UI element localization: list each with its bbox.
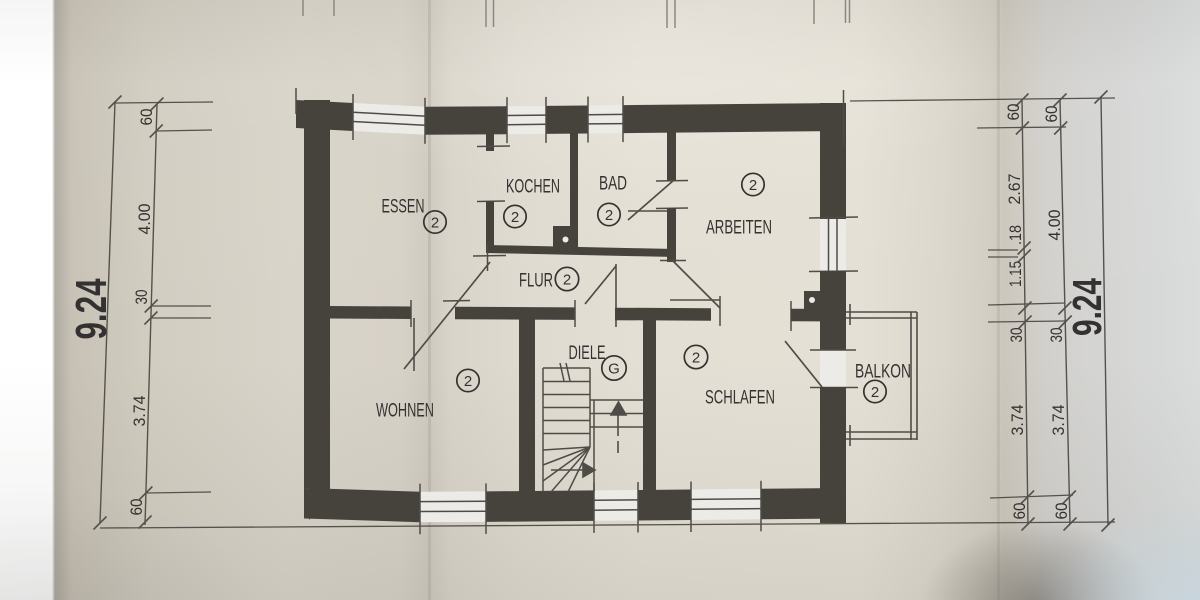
svg-text:60: 60 — [1052, 503, 1071, 520]
svg-text:DIELE: DIELE — [569, 343, 606, 364]
svg-text:G: G — [608, 360, 620, 377]
svg-text:SCHLAFEN: SCHLAFEN — [705, 388, 775, 409]
svg-text:3.74: 3.74 — [1008, 405, 1027, 436]
svg-text:WOHNEN: WOHNEN — [376, 401, 434, 422]
svg-text:60: 60 — [127, 499, 146, 516]
svg-text:FLUR: FLUR — [519, 271, 553, 292]
svg-text:60: 60 — [1004, 104, 1023, 121]
svg-text:9.24: 9.24 — [1064, 278, 1110, 336]
svg-text:2: 2 — [692, 349, 700, 366]
svg-text:ARBEITEN: ARBEITEN — [706, 218, 772, 239]
svg-text:30: 30 — [1007, 328, 1026, 343]
svg-text:60: 60 — [1010, 503, 1029, 520]
svg-text:4.00: 4.00 — [135, 204, 154, 235]
svg-text:2: 2 — [605, 207, 613, 224]
svg-text:3.74: 3.74 — [130, 396, 149, 427]
svg-text:60: 60 — [137, 109, 156, 126]
svg-text:2: 2 — [431, 214, 439, 231]
svg-text:2: 2 — [749, 177, 757, 194]
svg-text:2: 2 — [871, 384, 879, 401]
svg-text:.18: .18 — [1006, 225, 1025, 245]
svg-text:4.00: 4.00 — [1045, 210, 1064, 241]
svg-text:2: 2 — [563, 271, 571, 288]
svg-text:KOCHEN: KOCHEN — [506, 177, 560, 198]
svg-text:1.15: 1.15 — [1006, 261, 1025, 287]
svg-text:2: 2 — [511, 209, 519, 226]
svg-text:BAD: BAD — [599, 174, 627, 195]
svg-text:3.74: 3.74 — [1049, 405, 1068, 436]
svg-text:ESSEN: ESSEN — [382, 197, 425, 218]
svg-text:30: 30 — [132, 290, 151, 305]
svg-text:9.24: 9.24 — [67, 278, 116, 339]
svg-text:2: 2 — [464, 373, 472, 390]
svg-text:BALKON: BALKON — [855, 362, 911, 383]
svg-text:2.67: 2.67 — [1005, 174, 1024, 205]
svg-text:60: 60 — [1042, 106, 1061, 123]
